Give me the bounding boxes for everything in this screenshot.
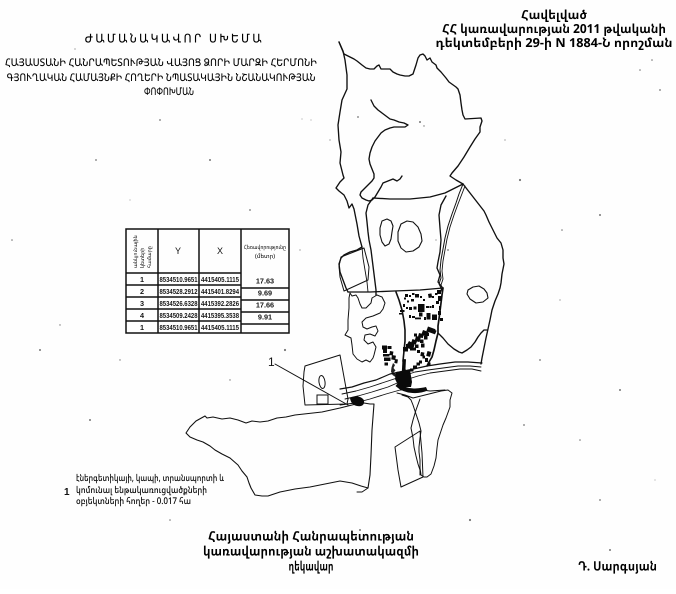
svg-text:17.66: 17.66: [256, 301, 274, 310]
svg-text:4415392.2826: 4415392.2826: [201, 299, 239, 308]
svg-text:1: 1: [268, 355, 275, 369]
svg-text:8534510.9651: 8534510.9651: [160, 323, 198, 332]
svg-text:2: 2: [140, 287, 144, 296]
svg-text:17.63: 17.63: [256, 277, 274, 286]
svg-text:8534526.6328: 8534526.6328: [160, 299, 198, 308]
svg-text:9.69: 9.69: [258, 289, 272, 298]
svg-text:4415405.1115: 4415405.1115: [201, 275, 239, 284]
svg-text:4415395.3538: 4415395.3538: [201, 311, 239, 320]
svg-text:8534509.2428: 8534509.2428: [160, 311, 198, 320]
svg-text:9.91: 9.91: [258, 313, 272, 322]
svg-text:Y: Y: [175, 246, 181, 256]
svg-text:4415401.8294: 4415401.8294: [201, 287, 240, 296]
svg-text:8534510.9651: 8534510.9651: [160, 275, 198, 284]
svg-text:1: 1: [140, 323, 144, 332]
svg-text:1: 1: [140, 275, 144, 284]
svg-text:4415405.1115: 4415405.1115: [201, 323, 239, 332]
svg-text:3: 3: [140, 299, 144, 308]
svg-text:1: 1: [64, 487, 70, 498]
svg-text:8534528.2912: 8534528.2912: [160, 287, 198, 296]
svg-text:X: X: [217, 246, 223, 256]
